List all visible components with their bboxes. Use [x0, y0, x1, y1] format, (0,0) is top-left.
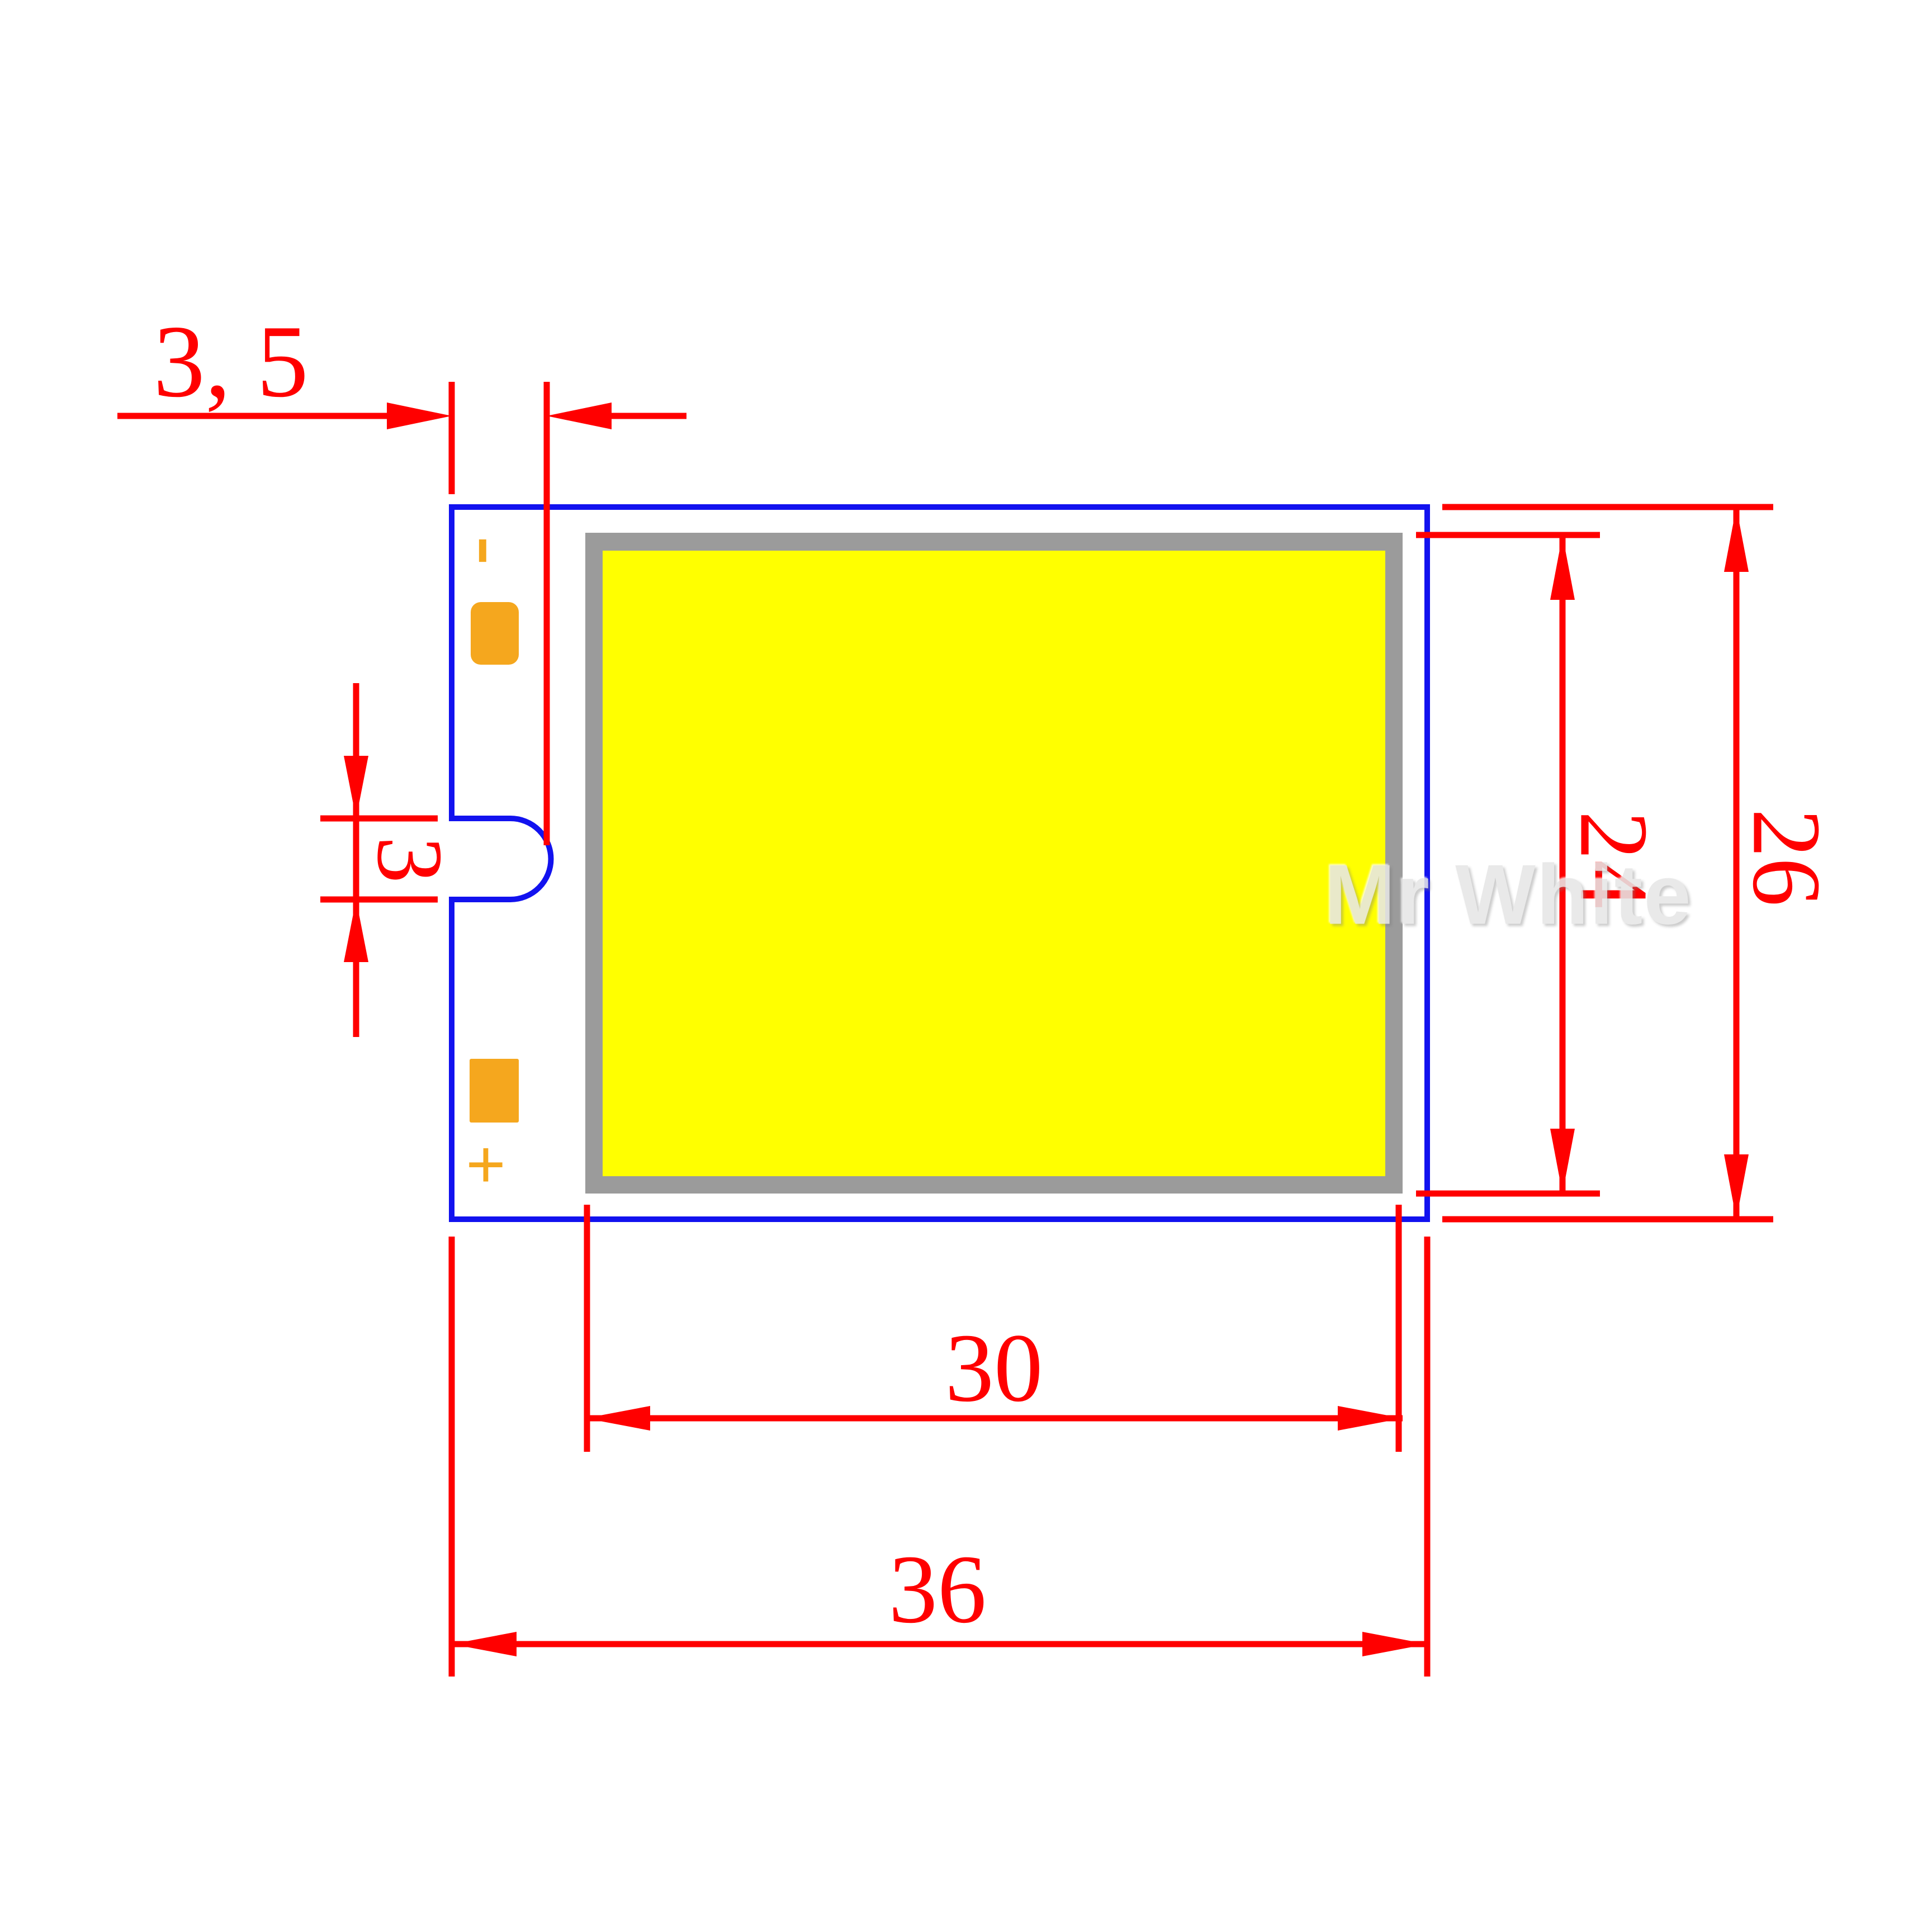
dim-emitter-height-arrow-top-icon [1550, 535, 1575, 600]
dim-board-height-arrow-top-icon [1724, 507, 1749, 572]
watermark-text: Mr White [1324, 846, 1692, 944]
emitter-area-rect [603, 551, 1385, 1176]
negative-pad [471, 602, 519, 665]
dim-emitter-height-arrow-bottom-icon [1550, 1129, 1575, 1194]
dim-notch-arrow-down-icon [344, 756, 368, 818]
dim-pad-offset-label: 3, 5 [153, 310, 309, 414]
negative-polarity-mark: - [444, 536, 536, 566]
dim-emitter-width-label: 30 [945, 1319, 1043, 1417]
dim-emitter-width-arrow-left-icon [585, 1406, 650, 1431]
dim-board-width-arrow-right-icon [1362, 1632, 1427, 1656]
dim-board-width-label: 36 [889, 1541, 987, 1639]
dim-pad-offset-arrow-right-icon [387, 402, 452, 429]
dim-emitter-width-arrow-right-icon [1338, 1406, 1403, 1431]
positive-pad [470, 1059, 519, 1123]
dim-notch-label: 3 [363, 836, 457, 883]
dim-board-height-arrow-bottom-icon [1724, 1154, 1749, 1219]
dim-notch-arrow-up-icon [344, 899, 368, 962]
dim-board-width-arrow-left-icon [452, 1632, 517, 1656]
positive-polarity-mark: + [466, 1130, 505, 1198]
canvas: 3, 5 3 24 26 30 36 - + Mr White [0, 0, 1932, 1932]
dim-board-height-label: 26 [1738, 809, 1836, 907]
dim-pad-offset-arrow-left-icon [547, 402, 612, 429]
